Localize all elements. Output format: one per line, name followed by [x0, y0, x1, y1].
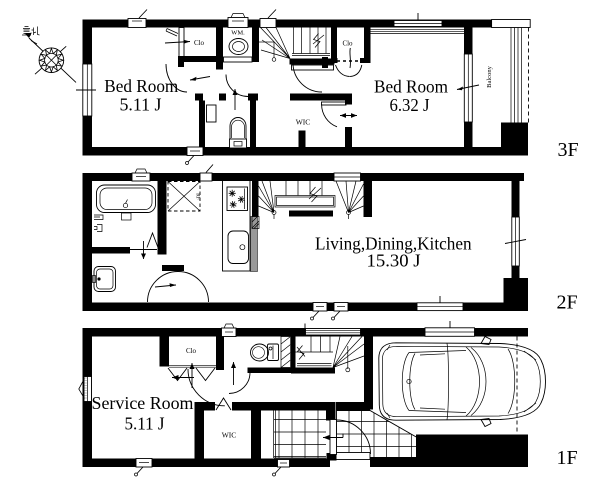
- svg-text:3F: 3F: [557, 139, 578, 161]
- svg-text:Service Room: Service Room: [92, 393, 194, 413]
- svg-text:6.32 J: 6.32 J: [390, 95, 430, 115]
- svg-text:1F: 1F: [556, 447, 577, 469]
- svg-text:RF: RF: [195, 193, 201, 200]
- svg-text:Balcony: Balcony: [486, 65, 493, 87]
- svg-text:5.11 J: 5.11 J: [120, 95, 162, 115]
- svg-text:15.30 J: 15.30 J: [367, 251, 421, 271]
- svg-text:Clo: Clo: [194, 39, 205, 47]
- svg-text:Clo: Clo: [186, 347, 197, 355]
- svg-text:Bed Room: Bed Room: [104, 76, 178, 96]
- svg-text:WIC: WIC: [296, 118, 311, 127]
- svg-text:Clo: Clo: [342, 40, 353, 48]
- svg-text:WIC: WIC: [222, 431, 237, 440]
- svg-text:2F: 2F: [556, 292, 577, 314]
- svg-text:WM.: WM.: [231, 30, 245, 37]
- svg-text:5.11 J: 5.11 J: [125, 414, 165, 434]
- svg-text:Bed Room: Bed Room: [374, 77, 448, 97]
